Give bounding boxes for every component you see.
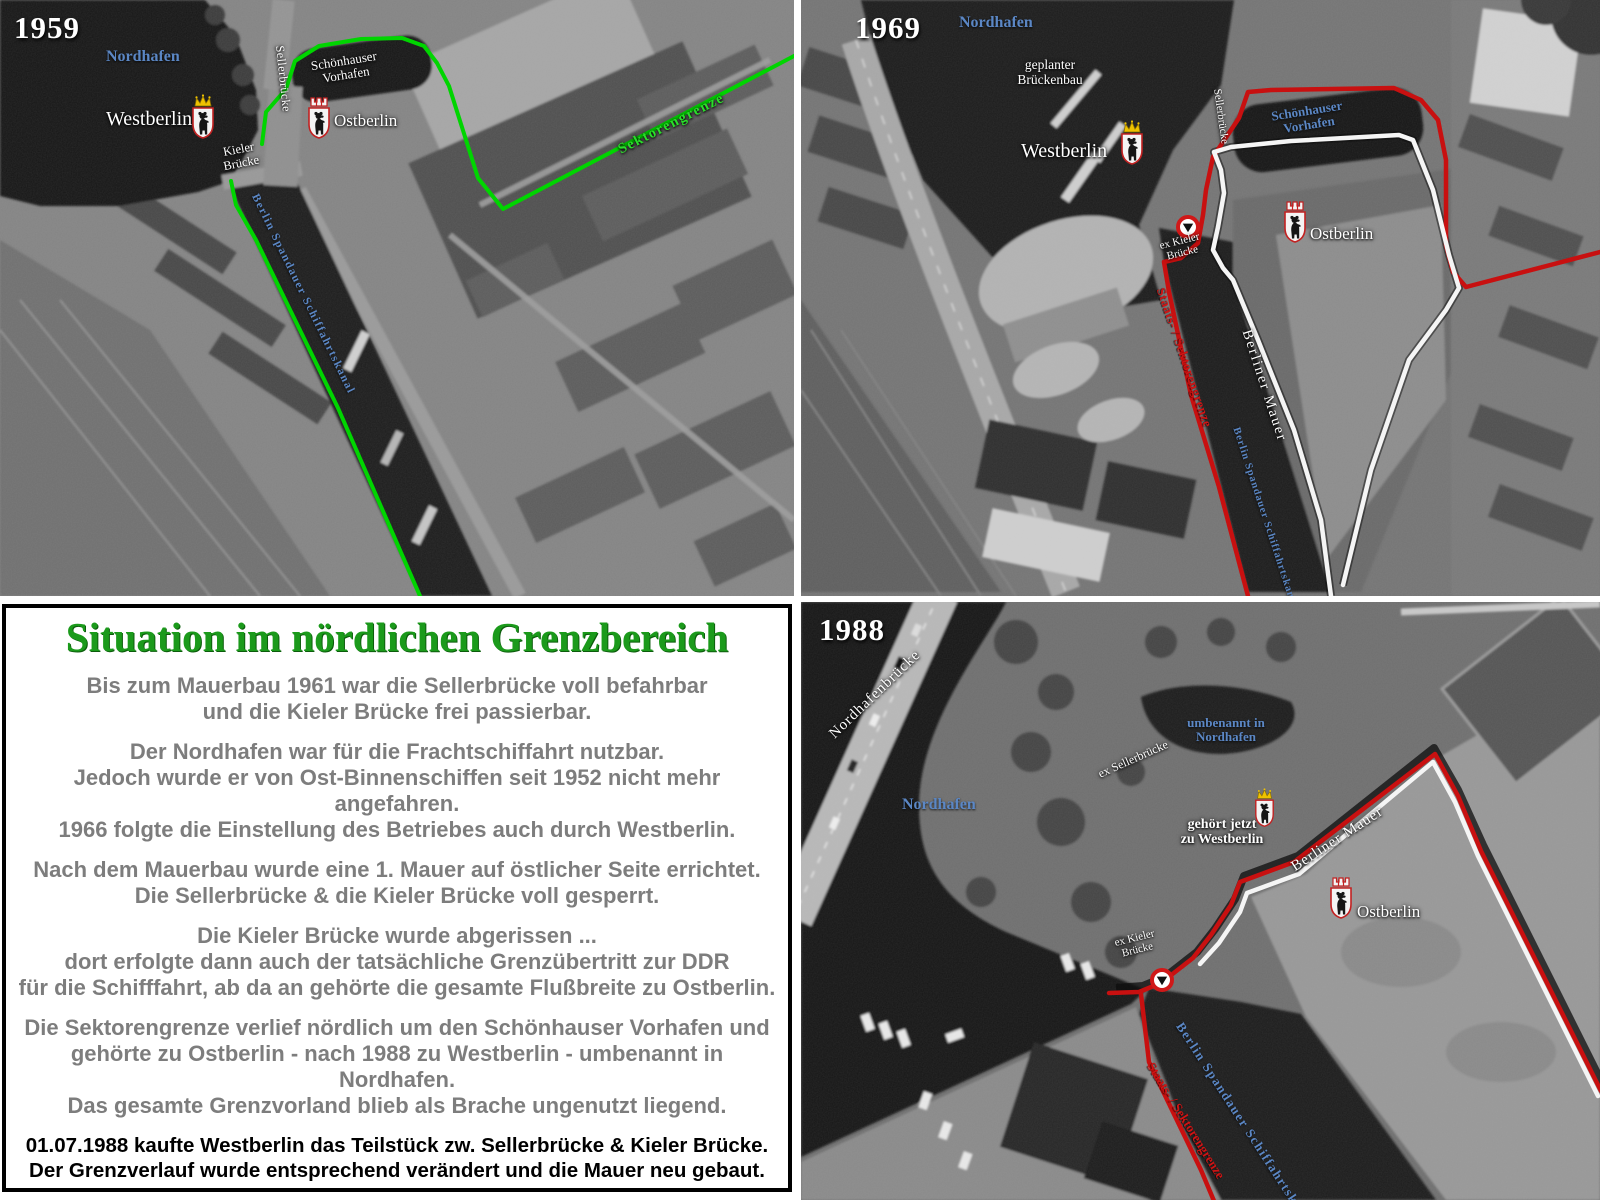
westberlin-label: Westberlin: [106, 108, 192, 130]
ostberlin-label: Ostberlin: [1357, 903, 1420, 922]
aerial-photo-1988: [801, 602, 1600, 1200]
year-label-1969: 1969: [855, 10, 921, 46]
panel-1959: 1959 Nordhafen Schönhauser Vorhafen West…: [0, 0, 794, 596]
aerial-photo-1969: [801, 0, 1600, 596]
composite-map-page: 1959 Nordhafen Schönhauser Vorhafen West…: [0, 0, 1600, 1200]
year-label-1988: 1988: [819, 612, 885, 648]
panel-1988: 1988 Nordhafenbrücke Nordhafen umbenannt…: [801, 602, 1600, 1200]
info-paragraph-6: 01.07.1988 kaufte Westberlin das Teilstü…: [14, 1133, 780, 1183]
nordhafen-label: Nordhafen: [959, 14, 1033, 32]
ostberlin-coat-of-arms-icon: [1328, 874, 1354, 920]
nordhafen-label: Nordhafen: [902, 796, 976, 814]
info-paragraph-3: Nach dem Mauerbau wurde eine 1. Mauer au…: [14, 857, 780, 909]
ostberlin-label: Ostberlin: [334, 112, 397, 131]
aerial-photo-1959: [0, 0, 794, 596]
panel-1969: 1969 Nordhafen geplanter Brückenbau West…: [801, 0, 1600, 596]
umbenannt-in-nordhafen-label: umbenannt in Nordhafen: [1174, 716, 1278, 745]
westberlin-label: Westberlin: [1021, 140, 1107, 162]
info-paragraph-1: Bis zum Mauerbau 1961 war die Sellerbrüc…: [14, 673, 780, 725]
info-text-panel: Situation im nördlichen Grenzbereich Bis…: [2, 604, 792, 1192]
info-paragraph-2: Der Nordhafen war für die Frachtschiffah…: [14, 739, 780, 843]
geplanter-brueckenbau-label: geplanter Brückenbau: [995, 58, 1105, 88]
ship-prohibition-sign-icon: [1150, 968, 1174, 992]
ostberlin-coat-of-arms-icon: [306, 94, 332, 140]
westberlin-coat-of-arms-icon: [1253, 788, 1276, 828]
info-paragraph-5: Die Sektorengrenze verlief nördlich um d…: [14, 1015, 780, 1119]
westberlin-coat-of-arms-icon: [190, 94, 216, 140]
westberlin-coat-of-arms-icon: [1119, 120, 1145, 166]
year-label-1959: 1959: [14, 10, 80, 46]
ostberlin-label: Ostberlin: [1310, 225, 1373, 244]
info-paragraph-4: Die Kieler Brücke wurde abgerissen ... d…: [14, 923, 780, 1001]
info-title: Situation im nördlichen Grenzbereich: [6, 616, 788, 659]
nordhafen-label: Nordhafen: [106, 48, 180, 66]
ostberlin-coat-of-arms-icon: [1282, 198, 1308, 244]
